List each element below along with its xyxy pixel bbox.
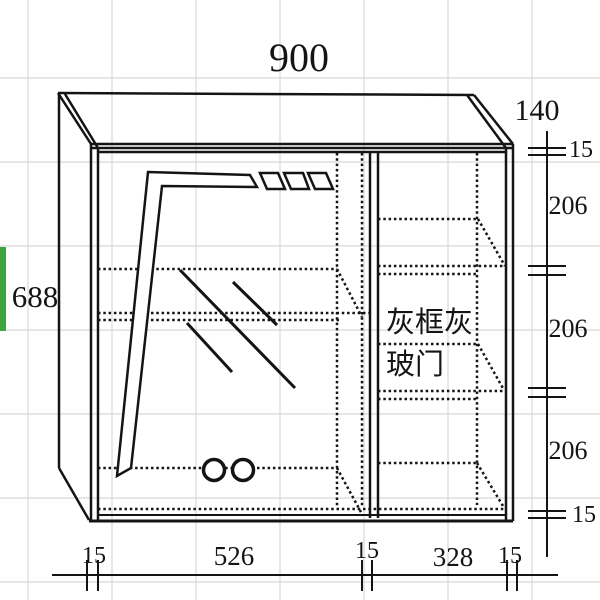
- center-divider-panel: [370, 152, 378, 518]
- dim-label-bottom-15-mid: 15: [355, 538, 379, 564]
- door-annotation-line1: 灰框灰: [386, 306, 473, 339]
- door-rail-segment-icon: [260, 173, 285, 189]
- door-handle-holes: [204, 460, 254, 481]
- dimension-labels: 900 140 688 15 206 206 206 15 15 526 15 …: [12, 35, 596, 572]
- dim-label-right-206-c: 206: [549, 436, 588, 465]
- door-top-rail-segments: [260, 173, 333, 189]
- dim-label-bottom-328: 328: [433, 542, 474, 572]
- dim-label-right-206-a: 206: [549, 191, 588, 220]
- dim-label-bottom-526: 526: [214, 541, 255, 571]
- dim-label-top-width: 900: [269, 35, 329, 80]
- handle-hole-icon: [204, 460, 225, 481]
- door-annotation-line2: 玻门: [386, 348, 444, 381]
- dim-label-bottom-15-left: 15: [82, 543, 106, 569]
- door-rail-segment-icon: [284, 173, 309, 189]
- dim-label-top-depth: 140: [515, 94, 560, 127]
- cabinet-top-face: [58, 93, 513, 148]
- door-rail-segment-icon: [308, 173, 333, 189]
- green-row-highlight-bar: [0, 247, 6, 331]
- cabinet-drawing: 900 140 688 15 206 206 206 15 15 526 15 …: [0, 0, 600, 600]
- dim-label-right-15-bottom: 15: [572, 502, 596, 528]
- glass-door: [117, 172, 333, 481]
- left-side-panel: [59, 93, 89, 520]
- dim-label-right-206-b: 206: [549, 314, 588, 343]
- handle-hole-icon: [233, 460, 254, 481]
- dim-label-left-height: 688: [12, 279, 59, 314]
- glass-reflection-lines: [180, 270, 295, 388]
- dim-label-bottom-15-right: 15: [498, 543, 522, 569]
- dim-label-right-15-top: 15: [569, 137, 593, 163]
- cabinet-drawing-canvas: 900 140 688 15 206 206 206 15 15 526 15 …: [0, 0, 600, 600]
- bottom-dimension-line: [52, 560, 558, 591]
